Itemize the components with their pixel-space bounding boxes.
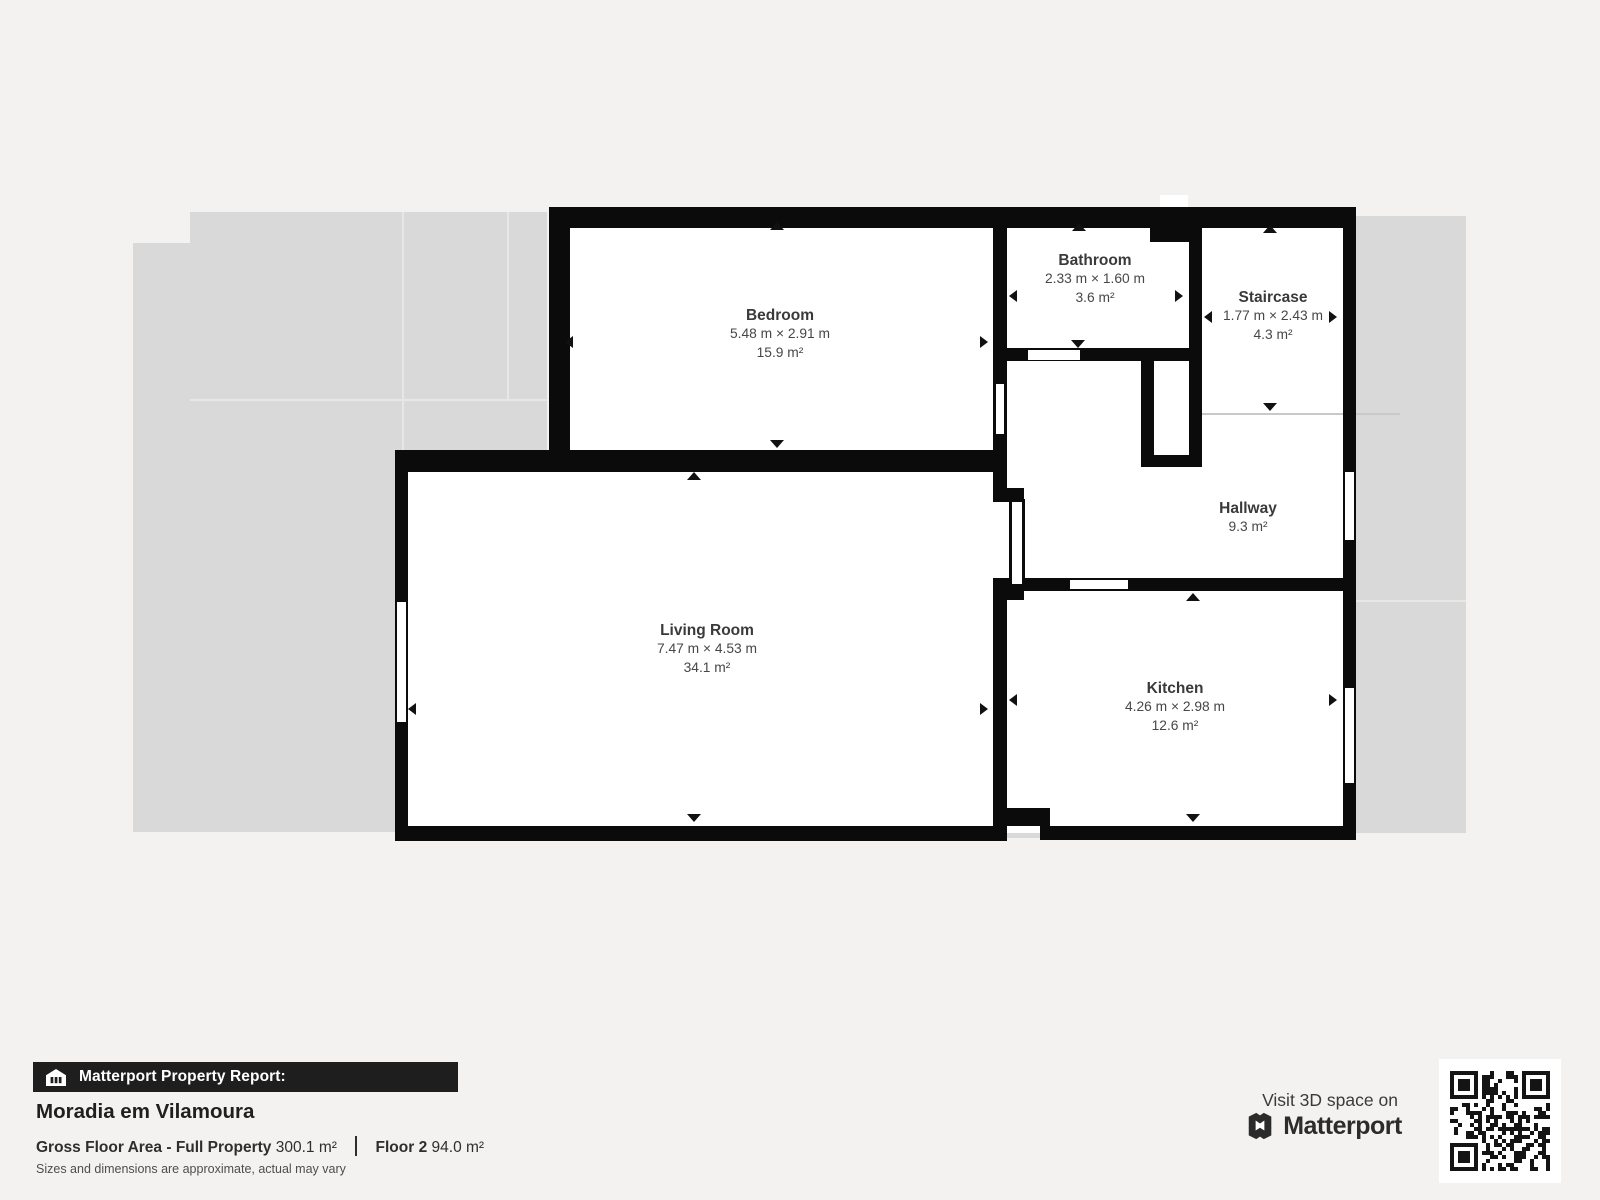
floor-area-info: Gross Floor Area - Full Property 300.1 m… [36,1136,484,1157]
context-area [133,243,190,832]
floor-plan-report-page: { "floorplan": { "wall_color": "#0b0b0b"… [0,0,1600,1200]
room-label-bedroom: Bedroom 5.48 m × 2.91 m 15.9 m² [680,306,880,362]
dimension-arrow-up-icon [687,472,701,480]
dimension-arrow-up-icon [1072,223,1086,231]
wall [1040,826,1356,840]
dimension-arrow-right-icon [1329,694,1337,706]
door-bathroom [1028,350,1080,360]
wall [549,207,570,452]
wall [395,450,1007,472]
room-dimensions: 7.47 m × 4.53 m [607,640,807,659]
context-area [190,212,547,452]
context-area [190,452,395,832]
room-dimensions: 2.33 m × 1.60 m [995,270,1195,289]
gross-floor-area-label: Gross Floor Area - Full Property [36,1139,271,1156]
dimension-arrow-up-icon [770,222,784,230]
room-label-living-room: Living Room 7.47 m × 4.53 m 34.1 m² [607,621,807,677]
room-area: 3.6 m² [995,289,1195,308]
report-banner: Matterport Property Report: [33,1062,458,1092]
room-label-kitchen: Kitchen 4.26 m × 2.98 m 12.6 m² [1075,679,1275,735]
wall [993,578,1007,841]
dimension-arrow-up-icon [1263,225,1277,233]
door-living-hallway [1009,499,1025,587]
matterport-logo: Matterport [1222,1111,1425,1141]
wall [1141,361,1154,467]
room-name: Bathroom [995,251,1195,270]
dimension-arrow-down-icon [1071,340,1085,348]
door-kitchen [1070,580,1128,589]
visit-3d-space-label: Visit 3D space on [1235,1090,1425,1111]
room-area: 34.1 m² [607,659,807,678]
wall [1007,578,1356,591]
property-house-icon [46,1069,66,1086]
room-area: 4.3 m² [1173,326,1373,345]
wall [1150,211,1190,242]
dimension-arrow-down-icon [687,814,701,822]
disclaimer-text: Sizes and dimensions are approximate, ac… [36,1162,346,1176]
dimension-arrow-down-icon [1263,403,1277,411]
floor-label: Floor 2 [376,1139,428,1156]
window-kitchen [1345,688,1354,783]
matterport-wordmark: Matterport [1283,1112,1402,1141]
room-name: Kitchen [1075,679,1275,698]
wall [395,826,1007,841]
info-divider [355,1136,357,1156]
wall [549,207,1355,228]
floor-value: 94.0 m² [432,1139,485,1156]
report-banner-label: Matterport Property Report: [79,1068,286,1086]
gross-floor-area-value: 300.1 m² [276,1139,337,1156]
context-room-seam [1356,600,1466,602]
room-area: 9.3 m² [1148,518,1348,537]
property-name: Moradia em Vilamoura [36,1100,254,1124]
dimension-arrow-left-icon [565,336,573,348]
staircase-edge-line [1356,413,1400,415]
room-name: Hallway [1148,499,1348,518]
window-bedroom-hallway [996,384,1004,434]
context-room-seam [507,212,509,400]
dimension-arrow-right-icon [980,703,988,715]
window-living [397,602,406,722]
staircase-edge-line [1202,413,1343,415]
matterport-m-icon [1245,1111,1275,1141]
dimension-arrow-up-icon [1186,593,1200,601]
wall [1007,808,1050,826]
room-area: 15.9 m² [680,344,880,363]
room-name: Bedroom [680,306,880,325]
room-dimensions: 1.77 m × 2.43 m [1173,307,1373,326]
context-room-seam [402,212,404,452]
room-label-bathroom: Bathroom 2.33 m × 1.60 m 3.6 m² [995,251,1195,307]
dimension-arrow-down-icon [770,440,784,448]
room-area: 12.6 m² [1075,717,1275,736]
dimension-arrow-right-icon [980,336,988,348]
room-name: Staircase [1173,288,1373,307]
room-label-staircase: Staircase 1.77 m × 2.43 m 4.3 m² [1173,288,1373,344]
dimension-arrow-down-icon [1186,814,1200,822]
room-dimensions: 5.48 m × 2.91 m [680,325,880,344]
dimension-arrow-left-icon [408,703,416,715]
room-dimensions: 4.26 m × 2.98 m [1075,698,1275,717]
dimension-arrow-left-icon [1009,694,1017,706]
room-label-hallway: Hallway 9.3 m² [1148,499,1348,537]
qr-code [1439,1059,1561,1183]
room-name: Living Room [607,621,807,640]
context-room-seam [190,399,547,401]
